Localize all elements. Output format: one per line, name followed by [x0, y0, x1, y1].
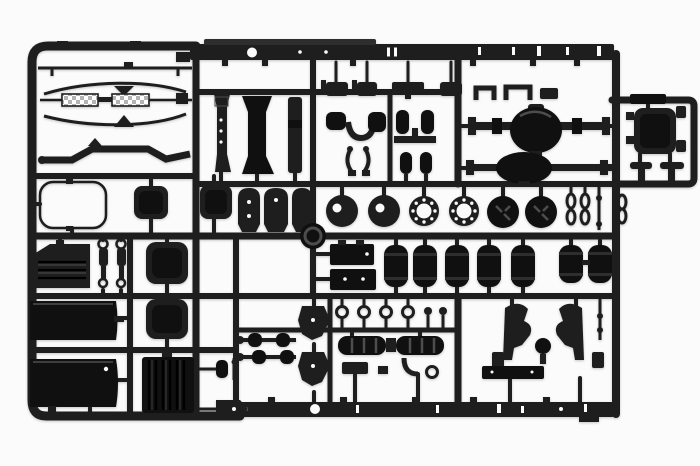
step-brackets: [476, 87, 558, 100]
cab-pillars: [214, 94, 302, 174]
flat-brackets: [238, 188, 312, 232]
tank-end-cap: [146, 242, 188, 284]
chassis-rail-top: [190, 39, 614, 66]
rim-rings: [409, 196, 479, 226]
tank-end-caps: [134, 185, 232, 339]
rim-ring: [409, 196, 439, 226]
fuel-tank-panels: [30, 301, 124, 416]
small-fittings: [216, 358, 248, 418]
battery-boxes: [330, 240, 376, 290]
shock-absorber: [117, 240, 127, 288]
diamond-plate-steps: [40, 93, 192, 106]
brake-discs: [326, 195, 400, 227]
torque-rods: [236, 333, 296, 364]
tank-end-cap: [146, 299, 188, 339]
chassis-rail-bottom: [236, 397, 614, 422]
wire-loop: [40, 179, 106, 231]
air-tank: [477, 245, 501, 287]
air-tank: [445, 245, 469, 287]
air-tank: [511, 245, 535, 287]
t-mounts: [630, 162, 684, 181]
rear-axle-housing: [466, 152, 612, 186]
stabilizer-bars: [38, 62, 192, 164]
wheel-hubs: [487, 196, 557, 228]
air-tank: [413, 245, 437, 287]
air-tank: [588, 245, 612, 283]
cab-mount-brackets: [482, 304, 604, 379]
air-tanks: [384, 245, 612, 287]
radiator-grille: [142, 351, 194, 413]
rim-ring: [449, 196, 479, 226]
rear-axle-housing: [468, 104, 610, 157]
louvered-panel: [34, 240, 90, 288]
tank-end-cap: [200, 185, 232, 219]
sprue-hub: [300, 223, 326, 249]
tank-end-cap: [134, 186, 168, 219]
shock-absorbers: [99, 240, 127, 288]
shock-absorber: [99, 240, 109, 288]
mufflers: [338, 336, 444, 378]
eye-rings: [337, 307, 448, 318]
air-tank: [384, 245, 408, 287]
air-tank: [559, 245, 583, 283]
sprue-photo: Black injection-molded plastic model-kit…: [0, 0, 700, 466]
sprue-drawing: [0, 0, 700, 466]
